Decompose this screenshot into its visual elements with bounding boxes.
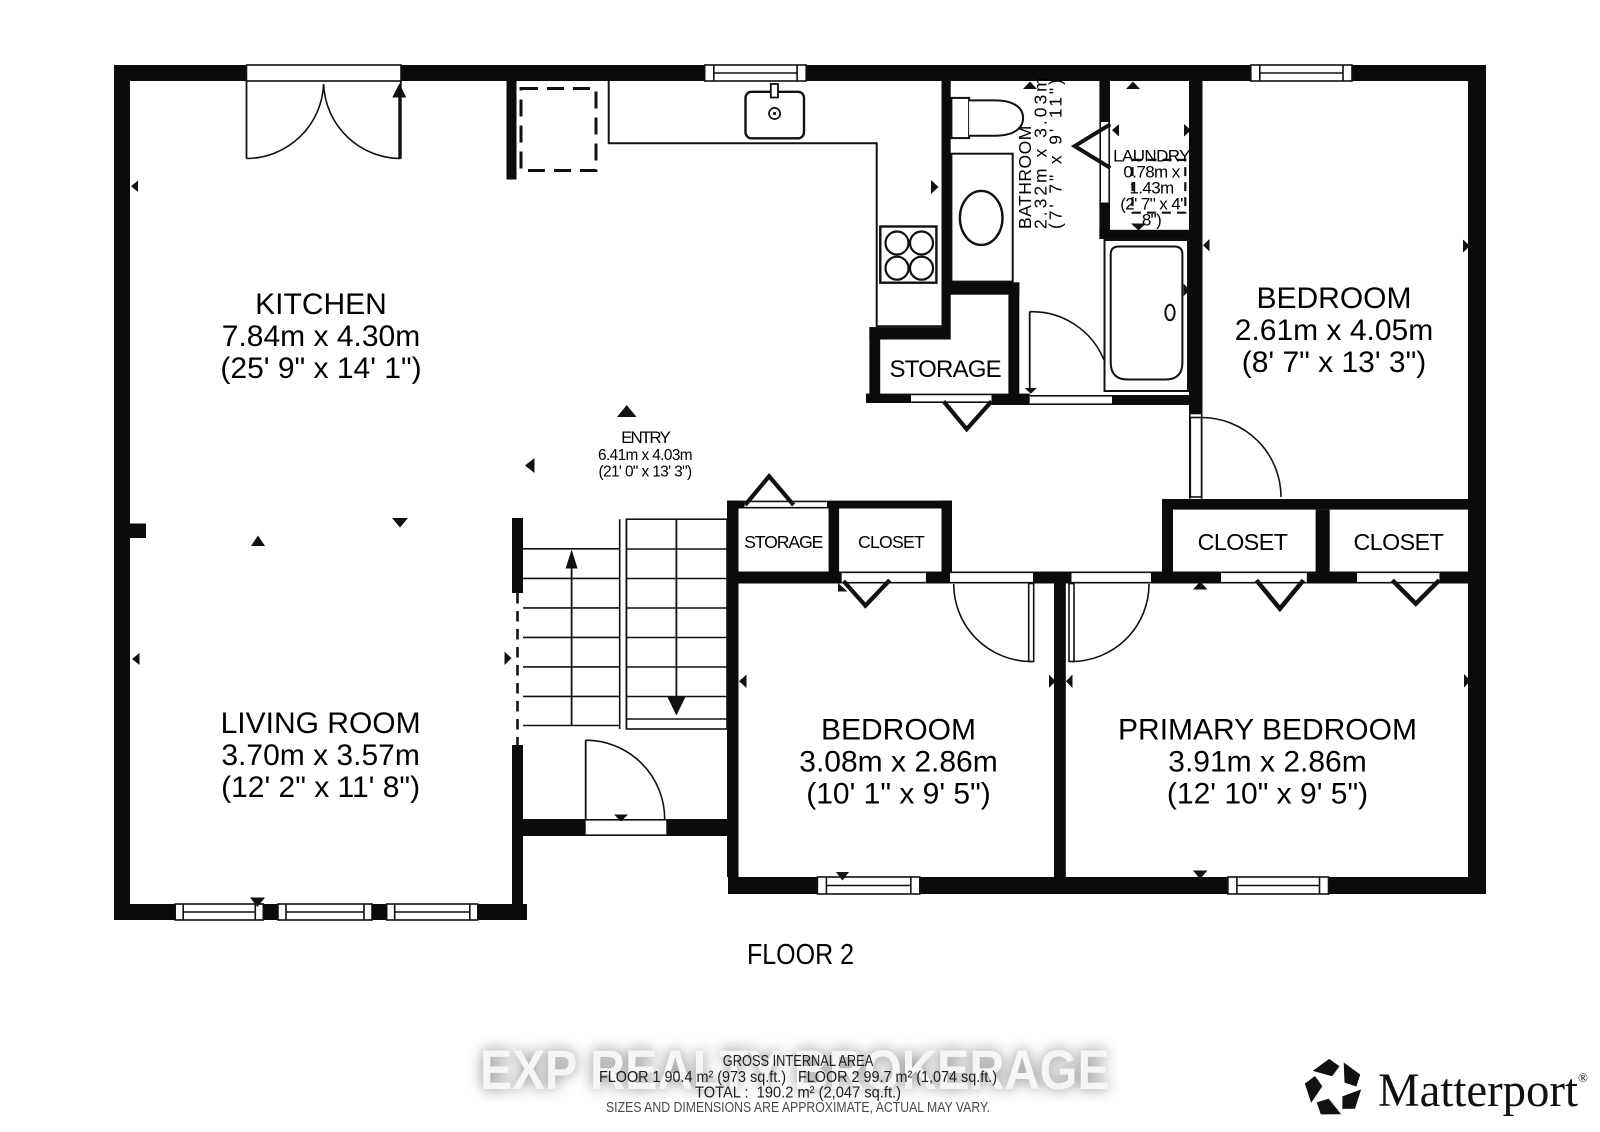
svg-text:FLOOR 1 90.4 m² (973 sq.ft.): FLOOR 1 90.4 m² (973 sq.ft.) FLOOR 2 99.… bbox=[599, 1069, 997, 1086]
svg-text:3.08m x 2.86m: 3.08m x 2.86m bbox=[799, 746, 997, 779]
svg-text:BEDROOM: BEDROOM bbox=[1256, 282, 1411, 315]
svg-text:(12' 10" x 9' 5"): (12' 10" x 9' 5") bbox=[1167, 778, 1368, 811]
svg-text:(12' 2" x 11' 8"): (12' 2" x 11' 8") bbox=[221, 771, 420, 804]
svg-text:KITCHEN: KITCHEN bbox=[255, 288, 387, 321]
svg-text:GROSS INTERNAL AREA: GROSS INTERNAL AREA bbox=[723, 1053, 874, 1070]
svg-text:6.41m x 4.03m: 6.41m x 4.03m bbox=[598, 447, 692, 464]
svg-text:2.61m x 4.05m: 2.61m x 4.05m bbox=[1235, 314, 1433, 347]
svg-text:PRIMARY BEDROOM: PRIMARY BEDROOM bbox=[1118, 714, 1417, 747]
svg-text:(25' 9" x 14' 1"): (25' 9" x 14' 1") bbox=[220, 352, 421, 385]
svg-text:(7' 7" x 9' 11"): (7' 7" x 9' 11") bbox=[1046, 76, 1066, 229]
svg-text:3.70m x 3.57m: 3.70m x 3.57m bbox=[221, 739, 419, 772]
svg-text:(21' 0" x 13' 3"): (21' 0" x 13' 3") bbox=[598, 464, 691, 481]
svg-text:ENTRY: ENTRY bbox=[621, 428, 670, 447]
svg-text:SIZES AND DIMENSIONS ARE APPRO: SIZES AND DIMENSIONS ARE APPROXIMATE, AC… bbox=[606, 1100, 990, 1116]
svg-text:STORAGE: STORAGE bbox=[890, 356, 1001, 383]
svg-text:LIVING ROOM: LIVING ROOM bbox=[221, 707, 421, 740]
svg-text:FLOOR 2: FLOOR 2 bbox=[747, 939, 854, 971]
svg-text:®: ® bbox=[1578, 1070, 1588, 1085]
svg-text:7.84m x 4.30m: 7.84m x 4.30m bbox=[222, 320, 420, 353]
svg-text:CLOSET: CLOSET bbox=[858, 532, 925, 552]
svg-text:TOTAL : 190.2 m² (2,047 sq.ft: TOTAL : 190.2 m² (2,047 sq.ft.) bbox=[695, 1085, 901, 1102]
svg-text:8"): 8") bbox=[1142, 211, 1161, 230]
svg-text:Matterport: Matterport bbox=[1378, 1064, 1579, 1117]
svg-text:BEDROOM: BEDROOM bbox=[821, 714, 976, 747]
svg-text:(10' 1" x 9' 5"): (10' 1" x 9' 5") bbox=[806, 778, 991, 811]
svg-text:CLOSET: CLOSET bbox=[1354, 529, 1444, 555]
svg-text:3.91m x 2.86m: 3.91m x 2.86m bbox=[1168, 746, 1366, 779]
svg-text:CLOSET: CLOSET bbox=[1198, 529, 1288, 555]
svg-text:STORAGE: STORAGE bbox=[744, 532, 823, 552]
svg-text:(8' 7" x 13' 3"): (8' 7" x 13' 3") bbox=[1242, 346, 1427, 379]
